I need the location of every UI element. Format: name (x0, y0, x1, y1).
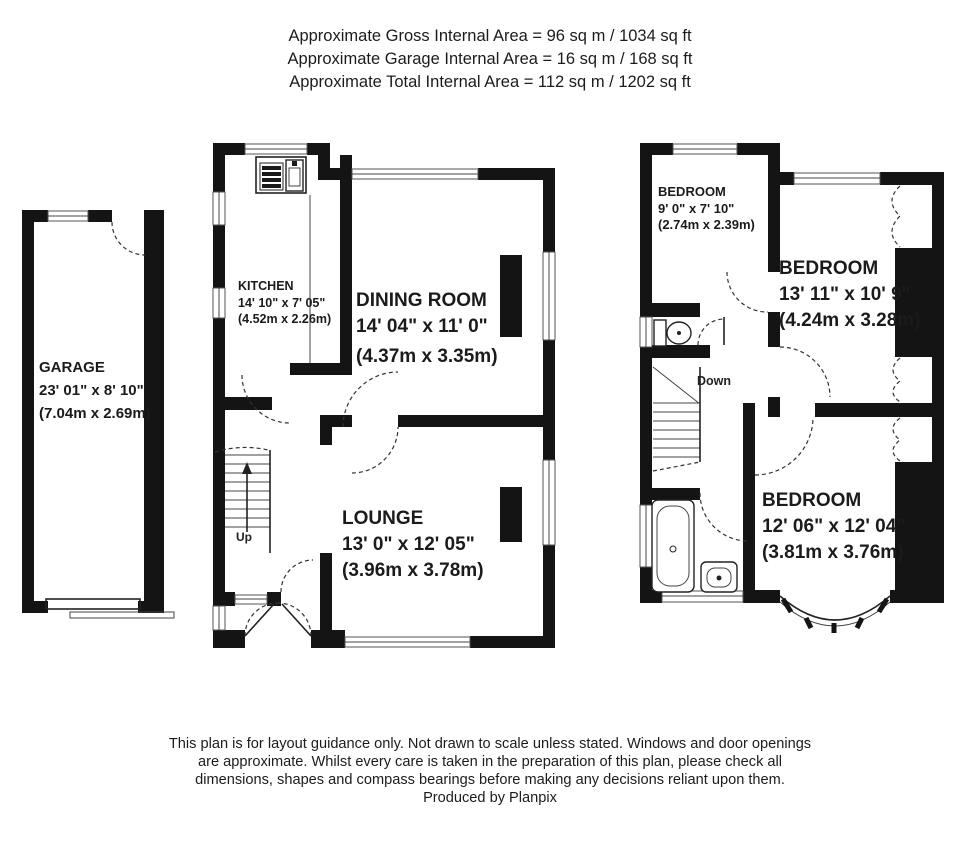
bedroom1-door-arc (727, 272, 768, 312)
room-size-imperial: 14' 04" x 11' 0" (356, 314, 498, 340)
kitchen-label: KITCHEN 14' 10" x 7' 05" (4.52m x 2.26m) (238, 278, 331, 328)
garage-label: GARAGE 23' 01" x 8' 10" (7.04m x 2.69m) (39, 356, 151, 425)
room-size-metric: (3.96m x 3.78m) (342, 558, 484, 584)
room-size-metric: (4.24m x 3.28m) (779, 308, 921, 334)
wc-door-arc (698, 319, 724, 345)
disclaimer-line: This plan is for layout guidance only. N… (0, 735, 980, 753)
room-size-imperial: 12' 06" x 12' 04" (762, 514, 905, 540)
area-summary: Approximate Gross Internal Area = 96 sq … (0, 25, 980, 94)
stairs-down-label: Down (697, 374, 731, 388)
room-name: DINING ROOM (356, 288, 498, 314)
bedroom1-label: BEDROOM 9' 0" x 7' 10" (2.74m x 2.39m) (658, 184, 755, 234)
total-area-line: Approximate Total Internal Area = 112 sq… (0, 71, 980, 94)
toilet-icon (654, 320, 691, 346)
bathtub-icon (652, 500, 694, 592)
producer-credit: Produced by Planpix (0, 789, 980, 807)
room-size-metric: (3.81m x 3.76m) (762, 540, 905, 566)
porch-door-arc (281, 560, 313, 592)
room-name: BEDROOM (762, 488, 905, 514)
room-size-imperial: 23' 01" x 8' 10" (39, 379, 151, 402)
room-size-imperial: 14' 10" x 7' 05" (238, 295, 331, 312)
gross-area-line: Approximate Gross Internal Area = 96 sq … (0, 25, 980, 48)
room-size-metric: (4.37m x 3.35m) (356, 344, 498, 370)
room-size-imperial: 13' 11" x 10' 9" (779, 282, 921, 308)
bedroom2-label: BEDROOM 13' 11" x 10' 9" (4.24m x 3.28m) (779, 256, 921, 334)
bow-window (780, 596, 890, 633)
stairs-up-label: Up (236, 530, 252, 544)
bedroom3-door-arc (755, 417, 813, 475)
lounge-label: LOUNGE 13' 0" x 12' 05" (3.96m x 3.78m) (342, 506, 484, 584)
room-name: BEDROOM (658, 184, 755, 201)
disclaimer-line: are approximate. Whilst every care is ta… (0, 753, 980, 771)
room-size-metric: (4.52m x 2.26m) (238, 311, 331, 328)
garage-door-arc (112, 222, 145, 255)
garage-area-line: Approximate Garage Internal Area = 16 sq… (0, 48, 980, 71)
kitchen-unit (256, 157, 310, 363)
room-size-imperial: 9' 0" x 7' 10" (658, 201, 755, 218)
bathroom-fixtures (652, 320, 737, 592)
disclaimer: This plan is for layout guidance only. N… (0, 735, 980, 807)
bay-window-recess-3 (893, 418, 900, 461)
bay-window-recess-1 (892, 186, 900, 247)
floorplan-graphics (0, 0, 980, 857)
room-name: KITCHEN (238, 278, 331, 295)
washbasin-icon (701, 562, 737, 592)
bathroom-door-arc (700, 493, 748, 541)
room-name: LOUNGE (342, 506, 484, 532)
bay-window-recess-2 (893, 358, 900, 402)
room-size-metric: (7.04m x 2.69m) (39, 402, 151, 425)
lounge-door-arc (352, 427, 398, 473)
room-size-imperial: 13' 0" x 12' 05" (342, 532, 484, 558)
bedroom2-door-arc (780, 347, 830, 397)
bedroom3-label: BEDROOM 12' 06" x 12' 04" (3.81m x 3.76m… (762, 488, 905, 566)
sink-icon (286, 160, 303, 191)
garage-window (48, 211, 88, 221)
cooker-icon (260, 163, 283, 190)
disclaimer-line: dimensions, shapes and compass bearings … (0, 771, 980, 789)
stairs-down (653, 367, 700, 471)
room-size-metric: (2.74m x 2.39m) (658, 217, 755, 234)
room-name: BEDROOM (779, 256, 921, 282)
dining-room-label: DINING ROOM 14' 04" x 11' 0" (4.37m x 3.… (356, 288, 498, 370)
room-name: GARAGE (39, 356, 151, 379)
